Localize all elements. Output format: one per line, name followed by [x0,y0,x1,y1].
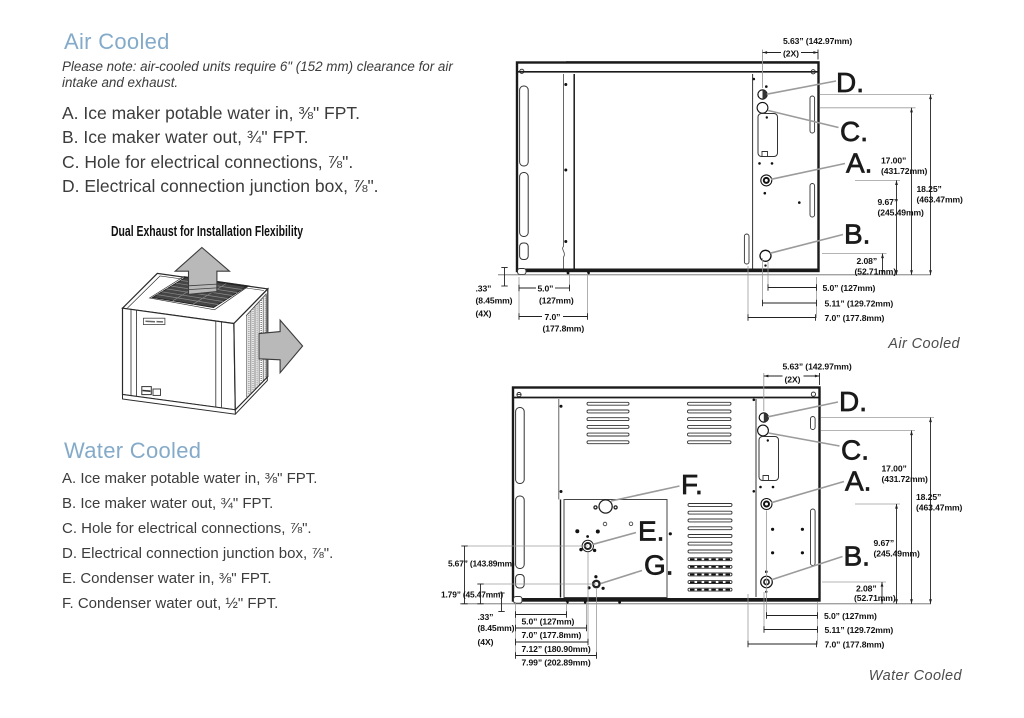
svg-text:7.0” (177.8mm): 7.0” (177.8mm) [825,313,885,323]
svg-text:F.: F. [681,469,703,500]
svg-text:.33”: .33” [476,284,492,294]
svg-text:(127mm): (127mm) [539,296,574,306]
svg-text:5.0” (127mm): 5.0” (127mm) [522,617,575,627]
svg-text:2.08”: 2.08” [857,256,878,266]
svg-text:7.12” (180.90mm): 7.12” (180.90mm) [522,644,591,654]
svg-text:9.67”: 9.67” [878,197,899,207]
svg-text:(431.72mm): (431.72mm) [881,166,928,176]
svg-text:A.: A. [845,466,871,497]
svg-text:9.67”: 9.67” [874,538,895,548]
svg-text:5.11” (129.72mm): 5.11” (129.72mm) [825,299,894,309]
svg-text:2.08”: 2.08” [856,584,877,594]
svg-text:D.: D. [836,67,864,98]
svg-text:(8.45mm): (8.45mm) [478,623,515,633]
svg-text:A.: A. [846,148,872,179]
svg-text:5.0” (127mm): 5.0” (127mm) [823,283,876,293]
svg-text:Water Cooled: Water Cooled [869,668,963,684]
svg-text:(52.71mm): (52.71mm) [855,267,897,277]
svg-text:7.99” (202.89mm): 7.99” (202.89mm) [522,658,591,668]
svg-text:7.0” (177.8mm): 7.0” (177.8mm) [825,640,885,650]
svg-text:Air Cooled: Air Cooled [887,336,960,352]
svg-text:(8.45mm): (8.45mm) [476,296,513,306]
svg-text:(4X): (4X) [478,637,494,647]
svg-text:5.63” (142.97mm): 5.63” (142.97mm) [783,362,852,372]
svg-text:17.00”: 17.00” [882,464,907,474]
svg-text:(245.49mm): (245.49mm) [878,208,925,218]
svg-text:C.: C. [840,116,868,147]
svg-text:5.11” (129.72mm): 5.11” (129.72mm) [825,625,894,635]
svg-text:(2X): (2X) [785,375,801,385]
svg-text:7.0”: 7.0” [545,312,561,322]
svg-text:(463.47mm): (463.47mm) [916,503,963,513]
svg-text:C.: C. [841,435,869,466]
svg-text:(177.8mm): (177.8mm) [543,324,585,334]
svg-text:18.25”: 18.25” [916,492,941,502]
svg-text:5.63” (142.97mm): 5.63” (142.97mm) [783,36,852,46]
svg-text:(52.71mm): (52.71mm) [854,593,896,603]
svg-text:(245.49mm): (245.49mm) [874,549,921,559]
svg-text:(431.72mm): (431.72mm) [882,474,929,484]
svg-text:18.25”: 18.25” [917,184,942,194]
svg-text:(2X): (2X) [783,49,799,59]
svg-text:(4X): (4X) [476,309,492,319]
svg-text:G.: G. [644,550,674,581]
svg-text:17.00”: 17.00” [881,156,906,166]
svg-text:.33”: .33” [478,612,494,622]
svg-text:(463.47mm): (463.47mm) [917,195,964,205]
svg-text:7.0” (177.8mm): 7.0” (177.8mm) [522,630,582,640]
svg-text:5.0” (127mm): 5.0” (127mm) [824,611,877,621]
svg-text:B.: B. [844,541,870,572]
svg-text:5.0”: 5.0” [538,284,554,294]
svg-text:B.: B. [844,219,870,250]
svg-text:D.: D. [839,386,867,417]
svg-text:5.67” (143.89mm): 5.67” (143.89mm) [448,559,515,569]
svg-text:1.79” (45.47mm): 1.79” (45.47mm) [441,590,503,600]
svg-text:E.: E. [638,516,664,547]
